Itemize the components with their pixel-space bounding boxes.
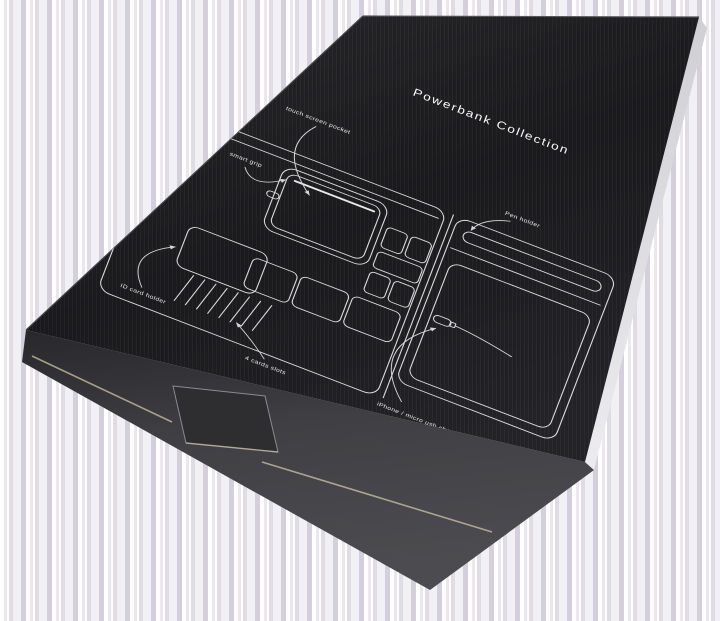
lid-flap-notch bbox=[173, 386, 278, 452]
product-box-photo: Powerbank Collection bbox=[0, 0, 720, 621]
photo-canvas: Powerbank Collection bbox=[0, 0, 720, 621]
